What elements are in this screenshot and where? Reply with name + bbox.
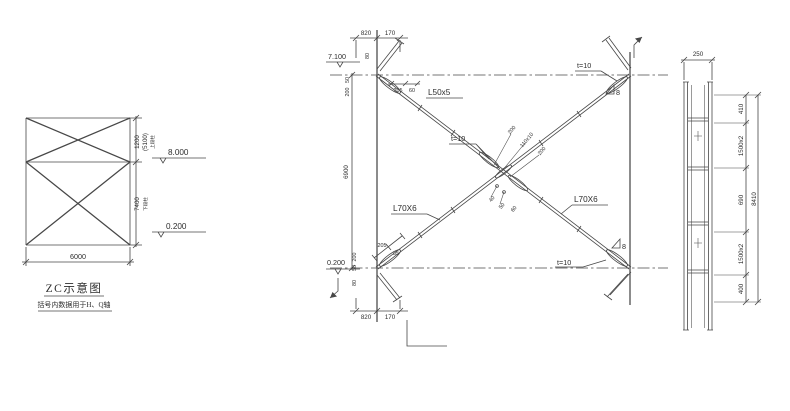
dim-170-bottom: 170 — [385, 314, 396, 321]
dim-820-top: 820 — [361, 30, 372, 37]
corner-small-dims-bottom: 200 50 80 205 85 — [352, 233, 405, 286]
level-710-value: 7.100 — [328, 52, 346, 61]
gusset-plates — [378, 75, 630, 269]
plate-notes: t=10 t=10 t=10 — [449, 61, 617, 267]
cad-bracing-drawing: 1200 (5100) 上段柱 7400 下段柱 8.000 0.200 600… — [0, 0, 790, 411]
level-top-value: 8.000 — [168, 148, 189, 157]
top-edge-dimension: 820 170 — [350, 30, 408, 58]
dim-60-splice: 60 — [510, 205, 518, 213]
dim-80-top: 80 — [365, 53, 371, 59]
column-member — [683, 82, 713, 330]
brace-lines — [26, 118, 130, 245]
plate-note-center: t=10 — [451, 134, 465, 143]
left-diagram: 1200 (5100) 上段柱 7400 下段柱 8.000 0.200 600… — [22, 115, 206, 311]
dim-40-splice: 40 — [488, 195, 496, 203]
level-marker-top: 8.000 — [152, 148, 206, 163]
dim-170-top: 170 — [385, 30, 396, 37]
dim-8410-overall: 8410 — [751, 192, 758, 206]
brace-diagonal-up — [376, 74, 631, 269]
dim-250-value: 250 — [693, 51, 704, 58]
weld-size-top: 8 — [616, 88, 620, 97]
dim-upper-alt: (5100) — [142, 133, 149, 151]
drawing-canvas: 1200 (5100) 上段柱 7400 下段柱 8.000 0.200 600… — [0, 0, 790, 411]
dim-205-bottom: 205 — [378, 243, 387, 249]
right-diagram: 250 410 1500x2 690 1500x2 400 8410 — [681, 51, 761, 330]
note-lower-column: 下段柱 — [142, 197, 149, 211]
level-020-value: 0.200 — [327, 258, 345, 267]
pin-marks — [694, 131, 702, 248]
label-L70X6-right: L70X6 — [574, 195, 598, 204]
left-vertical-dimension: 1200 (5100) 上段柱 7400 下段柱 — [130, 115, 156, 248]
level-bottom-value: 0.200 — [166, 222, 187, 231]
bracing-elevation-frame — [26, 118, 130, 245]
width-dimension: 6000 — [22, 247, 134, 266]
dim-50-bottom: 50 — [352, 265, 358, 271]
dim-690: 690 — [738, 194, 745, 205]
brace-diagonal-down — [376, 74, 631, 269]
drawing-title: ZC示意图 — [46, 281, 103, 295]
plate-note-bottom: t=10 — [557, 258, 571, 267]
note-upper-column: 上段柱 — [149, 135, 156, 149]
dim-200-splice-b: 200 — [537, 146, 547, 157]
label-L50x5: L50x5 — [428, 88, 451, 97]
batten-plates — [688, 118, 708, 273]
dim-400: 400 — [738, 283, 745, 294]
plate-note-top: t=10 — [577, 61, 591, 70]
dim-50-splice: 50 — [498, 202, 506, 210]
height-dimension: 6900 — [343, 72, 355, 271]
dim-200-bottom: 200 — [352, 253, 358, 262]
column-lines — [377, 30, 630, 322]
dim-height-value: 6900 — [343, 165, 350, 179]
dim-plate-110x10: 110x10 — [519, 132, 535, 149]
top-width-dimension: 250 — [681, 51, 715, 80]
dim-60-top: 60 — [409, 88, 415, 94]
dim-50-top: 50 — [345, 77, 351, 83]
drawing-subtitle: 括号内数据用于H、Q轴 — [37, 300, 110, 309]
drawing-title-block: ZC示意图 括号内数据用于H、Q轴 — [37, 281, 112, 311]
dim-80-bottom: 80 — [352, 280, 358, 286]
dim-200-top: 200 — [345, 88, 351, 97]
dim-lower-height: 7400 — [134, 197, 141, 211]
center-diagram: 6900 7.100 0.200 820 170 820 170 80 50 2… — [326, 30, 668, 346]
dim-1500x2-upper: 1500x2 — [738, 135, 745, 156]
dim-410: 410 — [738, 103, 745, 114]
dim-upper-height: 1200 — [134, 135, 141, 149]
dim-820-bottom: 820 — [361, 314, 372, 321]
bottom-edge-dimension: 820 170 — [350, 298, 408, 321]
brace-labels: L50x5 L70X6 L70X6 — [391, 88, 608, 220]
weld-size-bottom: 8 — [622, 242, 626, 251]
level-marker-bottom: 0.200 — [152, 222, 206, 237]
break-reference-line — [407, 320, 447, 346]
label-L70X6-left: L70X6 — [393, 204, 417, 213]
dim-width-value: 6000 — [70, 252, 86, 261]
weld-symbol-bottom: 8 — [612, 239, 626, 251]
level-marker-710: 7.100 — [326, 52, 360, 67]
dim-1500x2-lower: 1500x2 — [738, 243, 745, 264]
dim-200-splice-a: 200 — [507, 125, 517, 136]
right-height-dimensions: 410 1500x2 690 1500x2 400 8410 — [714, 92, 761, 305]
